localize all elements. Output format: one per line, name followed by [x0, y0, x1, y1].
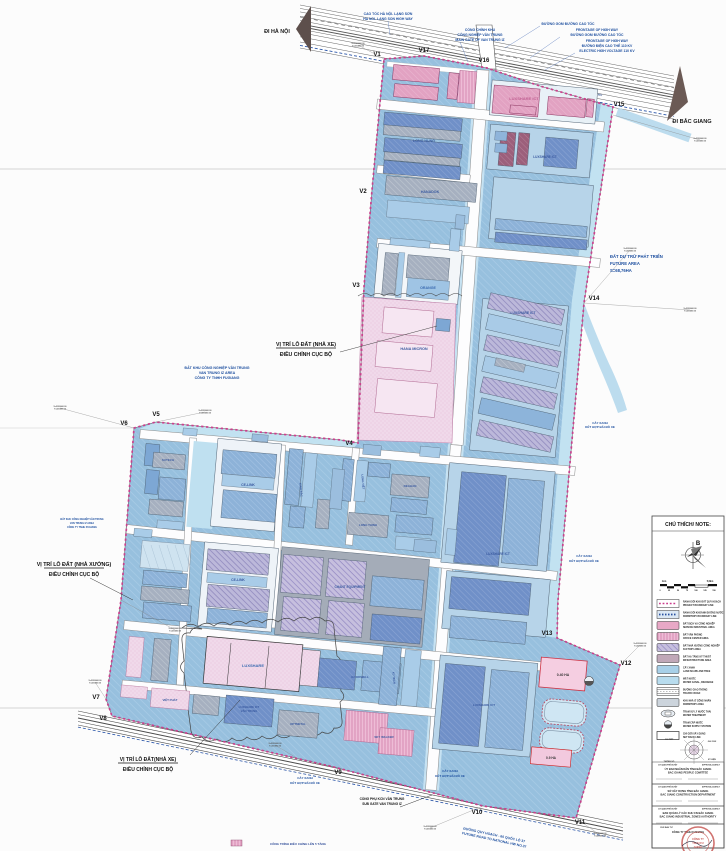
svg-text:HA NOI- LANG SON HIGH WAY: HA NOI- LANG SON HIGH WAY	[363, 17, 413, 21]
svg-text:V4: V4	[345, 441, 353, 447]
svg-text:SET BACK LINE: SET BACK LINE	[683, 736, 701, 739]
svg-text:SKY WALKER: SKY WALKER	[374, 735, 394, 739]
svg-text:CÔNG TRÌNH ĐIỀU CHỈNH LÊN 5 TẦ: CÔNG TRÌNH ĐIỀU CHỈNH LÊN 5 TẦNG	[270, 841, 327, 846]
svg-text:HANADOK: HANADOK	[421, 190, 440, 194]
svg-text:OFFICE CENTER AREA: OFFICE CENTER AREA	[683, 637, 709, 640]
svg-text:LONG HUNG: LONG HUNG	[413, 139, 435, 143]
svg-text:ĐẤT HẠ TẦNG KỸ THUẬT: ĐẤT HẠ TẦNG KỸ THUẬT	[683, 656, 712, 659]
svg-text:CE-LINK: CE-LINK	[241, 483, 255, 487]
svg-text:V8: V8	[99, 716, 107, 722]
svg-text:APPROVAL AGENCY: APPROVAL AGENCY	[702, 786, 721, 789]
svg-text:LUXSHARE ICT: LUXSHARE ICT	[486, 552, 510, 556]
svg-text:CƠ QUAN PHÊ DUYỆT: CƠ QUAN PHÊ DUYỆT	[658, 808, 678, 811]
svg-text:ĐIỀU CHỈNH CỤC BỘ: ĐIỀU CHỈNH CỤC BỘ	[280, 350, 332, 358]
svg-text:WATER CANAL, DRAINAGE: WATER CANAL, DRAINAGE	[683, 681, 714, 684]
svg-text:KẾT HỢP BÃI ĐỖ XE: KẾT HỢP BÃI ĐỖ XE	[585, 424, 615, 429]
svg-text:LUXSHARE ICT: LUXSHARE ICT	[510, 311, 536, 315]
svg-text:V5: V5	[152, 412, 160, 418]
svg-text:APPROVAL AGENCY: APPROVAL AGENCY	[702, 764, 721, 767]
svg-text:KẾT HỢP BÃI ĐỖ XE: KẾT HỢP BÃI ĐỖ XE	[290, 780, 320, 785]
svg-text:VÂN TRUNG: VÂN TRUNG	[241, 708, 258, 713]
svg-text:V17: V17	[419, 48, 430, 54]
svg-text:VAN TRUNG IZ AREA: VAN TRUNG IZ AREA	[70, 522, 94, 525]
svg-text:INFRASTRUCTURE AREA: INFRASTRUCTURE AREA	[683, 659, 712, 662]
svg-text:5,6km: 5,6km	[707, 581, 714, 583]
svg-text:B: B	[696, 541, 701, 547]
svg-text:CÔNG TY TNHH FUGIANG: CÔNG TY TNHH FUGIANG	[195, 375, 240, 380]
svg-text:ĐI BẮC GIANG: ĐI BẮC GIANG	[672, 117, 711, 125]
svg-text:V3: V3	[352, 283, 360, 289]
svg-text:V2: V2	[359, 189, 367, 195]
svg-text:TRAFFIC ROAD: TRAFFIC ROAD	[683, 692, 701, 695]
svg-text:FUTURE AREA: FUTURE AREA	[610, 261, 640, 266]
svg-text:Y=431590.00: Y=431590.00	[684, 310, 697, 313]
svg-text:LUXSHARE ICT: LUXSHARE ICT	[473, 703, 495, 707]
svg-text:CỔNG CHÍNH KHU: CỔNG CHÍNH KHU	[465, 27, 496, 32]
svg-text:LUXSHARE ICT: LUXSHARE ICT	[509, 96, 539, 101]
svg-text:SUB GATE VAN TRUNG IZ: SUB GATE VAN TRUNG IZ	[362, 802, 402, 806]
svg-text:0.40 HA: 0.40 HA	[557, 673, 570, 677]
svg-text:CƠ QUAN PHÊ DUYỆT: CƠ QUAN PHÊ DUYỆT	[658, 786, 678, 789]
svg-text:DORMITORY BOUNDARY LINE: DORMITORY BOUNDARY LINE	[683, 615, 717, 618]
svg-text:ĐIỀU CHỈNH CỤC BỘ: ĐIỀU CHỈNH CỤC BỘ	[123, 765, 173, 773]
svg-text:CÂY XANH: CÂY XANH	[576, 553, 592, 558]
svg-text:FRONTAGE OF HIGH WAY: FRONTAGE OF HIGH WAY	[576, 28, 619, 32]
svg-text:Y=431590.00: Y=431590.00	[54, 408, 67, 411]
svg-text:LUXSHARE ICT: LUXSHARE ICT	[533, 155, 557, 159]
svg-text:CỔNG PHỤ KCN VÂN TRUNG: CỔNG PHỤ KCN VÂN TRUNG	[360, 796, 405, 801]
svg-text:ĐẤT DỰ TRỮ PHÁT TRIỂN: ĐẤT DỰ TRỮ PHÁT TRIỂN	[610, 254, 663, 259]
svg-text:Y=431590.00: Y=431590.00	[352, 45, 365, 48]
svg-text:LUXSHARE: LUXSHARE	[242, 663, 264, 668]
svg-text:ELECTRIC HIGH VOLTAGE 110 KV: ELECTRIC HIGH VOLTAGE 110 KV	[579, 49, 635, 53]
svg-text:V13: V13	[542, 631, 553, 637]
svg-text:Y=431590.00: Y=431590.00	[199, 412, 212, 415]
svg-text:VỊ TRÍ LÔ ĐẤT(NHÀ XE): VỊ TRÍ LÔ ĐẤT(NHÀ XE)	[120, 755, 177, 763]
svg-text:CÔNG TY TNHH FUGIANG: CÔNG TY TNHH FUGIANG	[67, 526, 97, 529]
svg-text:Y=431590.00: Y=431590.00	[624, 250, 637, 253]
svg-text:Y=431590.00: Y=431590.00	[269, 745, 282, 748]
svg-text:V10: V10	[472, 810, 483, 816]
svg-text:DORMITORY AREA: DORMITORY AREA	[683, 703, 704, 706]
svg-text:VỊ TRÍ LÔ ĐẤT (NHÀ XE): VỊ TRÍ LÔ ĐẤT (NHÀ XE)	[276, 340, 336, 348]
svg-text:Y=431590.00: Y=431590.00	[169, 630, 182, 633]
svg-text:BAC GIANG CONSTRUCTION DEPARTM: BAC GIANG CONSTRUCTION DEPARTMENT	[661, 793, 716, 797]
svg-text:CÔNG NGHIỆP VÂN TRUNG: CÔNG NGHIỆP VÂN TRUNG	[457, 32, 503, 37]
svg-text:SERVICE INDUSTRIAL AREA: SERVICE INDUSTRIAL AREA	[683, 626, 715, 629]
svg-text:VAN TRUNG IZ AREA: VAN TRUNG IZ AREA	[199, 371, 236, 375]
svg-text:VỊ TRÍ LÔ ĐẤT (NHÀ XƯỞNG): VỊ TRÍ LÔ ĐẤT (NHÀ XƯỞNG)	[37, 560, 112, 568]
svg-text:CÂY XANH: CÂY XANH	[297, 775, 313, 780]
svg-text:MẶT NƯỚC: MẶT NƯỚC	[683, 678, 696, 681]
svg-text:TRẠM CẤP NƯỚC: TRẠM CẤP NƯỚC	[683, 722, 703, 725]
svg-text:Y=431590.00: Y=431590.00	[634, 645, 647, 648]
svg-text:GHI CHÚ: GHI CHÚ	[708, 740, 717, 743]
svg-text:WATER SUPPLY STATION: WATER SUPPLY STATION	[683, 725, 711, 728]
svg-text:KÝ HIỆU: KÝ HIỆU	[708, 758, 717, 761]
svg-text:V12: V12	[621, 661, 632, 667]
svg-text:ĐƯỜNG GIAO THÔNG: ĐƯỜNG GIAO THÔNG	[683, 689, 708, 692]
svg-text:V15: V15	[614, 102, 625, 108]
svg-text:CÂY XANH: CÂY XANH	[683, 667, 695, 670]
svg-text:ĐIỀU CHỈNH CỤC BỘ: ĐIỀU CHỈNH CỤC BỘ	[49, 570, 99, 578]
svg-text:KHU NHÀ Ở CÔNG NHÂN: KHU NHÀ Ở CÔNG NHÂN	[683, 700, 711, 703]
svg-text:Y=431590.00: Y=431590.00	[594, 835, 607, 838]
svg-text:Y=431590.00: Y=431590.00	[694, 140, 707, 143]
svg-text:LAND SCAPE AND TREE: LAND SCAPE AND TREE	[683, 670, 711, 673]
svg-text:LONG THỊNH: LONG THỊNH	[359, 523, 377, 527]
svg-text:RANH GIỚI KHOẢNH ĐƯỜNG NƯỚC: RANH GIỚI KHOẢNH ĐƯỜNG NƯỚC	[683, 612, 724, 615]
svg-text:CHÚ THÍCH/ NOTE:: CHÚ THÍCH/ NOTE:	[665, 520, 711, 528]
svg-text:Y=431590.00: Y=431590.00	[89, 682, 102, 685]
svg-text:APPROVAL AGENCY: APPROVAL AGENCY	[702, 808, 721, 811]
svg-text:ĐẤT VĂN PHÒNG: ĐẤT VĂN PHÒNG	[683, 634, 702, 637]
svg-text:KẾT HỢP BÃI ĐỖ XE: KẾT HỢP BÃI ĐỖ XE	[435, 773, 465, 778]
svg-text:BAC GIANG PEOPLE COMITTEE: BAC GIANG PEOPLE COMITTEE	[668, 771, 708, 775]
svg-text:CHỈ GIỚI XÂY DỰNG: CHỈ GIỚI XÂY DỰNG	[683, 733, 706, 736]
svg-text:CHỦ ĐẦU TƯ: CHỦ ĐẦU TƯ	[660, 826, 673, 829]
svg-text:V7: V7	[92, 695, 100, 701]
svg-text:CHANT EQUIPMENT: CHANT EQUIPMENT	[335, 585, 366, 589]
svg-text:OPTMETAL: OPTMETAL	[290, 722, 306, 726]
svg-text:ĐẤT KHU CÔNG NGHIỆP VÂN TRUNG: ĐẤT KHU CÔNG NGHIỆP VÂN TRUNG	[184, 365, 249, 370]
svg-text:0.9 HA: 0.9 HA	[546, 756, 557, 760]
svg-text:CAO TỐC HÀ NỘI- LẠNG SƠN: CAO TỐC HÀ NỘI- LẠNG SƠN	[364, 11, 413, 16]
svg-text:HANA MICRON: HANA MICRON	[400, 347, 428, 351]
svg-text:ĐẤT KHU CÔNG NGHIỆP VÂN TRUNG: ĐẤT KHU CÔNG NGHIỆP VÂN TRUNG	[60, 518, 103, 521]
svg-text:RANH GIỚI KHU ĐẤT QUY HOẠCH: RANH GIỚI KHU ĐẤT QUY HOẠCH	[683, 601, 721, 604]
svg-text:VIỆT PHÁT: VIỆT PHÁT	[162, 697, 177, 702]
svg-text:WATER TREATMENT: WATER TREATMENT	[683, 714, 706, 717]
svg-text:BAC GIANG INDUSTRIAL ZONES AUT: BAC GIANG INDUSTRIAL ZONES AUTHORITY	[660, 815, 717, 819]
svg-text:SUTECH: SUTECH	[162, 458, 174, 462]
svg-text:MAIN GATE OF VAN TRUNG IZ: MAIN GATE OF VAN TRUNG IZ	[455, 38, 504, 42]
svg-text:V16: V16	[479, 58, 490, 64]
svg-text:ĐI HÀ NỘI: ĐI HÀ NỘI	[264, 27, 290, 35]
svg-text:PROJECT BOUNDARY LINE: PROJECT BOUNDARY LINE	[683, 604, 714, 607]
svg-text:ĐƯỜNG GOM ĐƯỜNG CAO TỐC: ĐƯỜNG GOM ĐƯỜNG CAO TỐC	[541, 21, 595, 26]
svg-text:ORANGE: ORANGE	[420, 286, 436, 290]
svg-text:CƠ QUAN PHÊ DUYỆT: CƠ QUAN PHÊ DUYỆT	[658, 764, 678, 767]
svg-text:V14: V14	[589, 296, 600, 302]
svg-text:Y=431590.00: Y=431590.00	[424, 828, 437, 831]
svg-text:CHI TIẾT: CHI TIẾT	[665, 738, 674, 741]
svg-text:ĐƯỜNG ĐIỆN CAO THẾ 110 KV: ĐƯỜNG ĐIỆN CAO THẾ 110 KV	[582, 43, 633, 48]
svg-text:KẾT HỢP BÃI ĐỖ XE: KẾT HỢP BÃI ĐỖ XE	[569, 558, 599, 563]
svg-text:THÔNG SỐ: THÔNG SỐ	[664, 760, 675, 763]
svg-text:ĐẤT DỊCH VỤ CÔNG NGHIỆP: ĐẤT DỊCH VỤ CÔNG NGHIỆP	[683, 623, 715, 626]
svg-text:S=68,76HA: S=68,76HA	[610, 268, 632, 273]
svg-text:DEAHAN: DEAHAN	[404, 484, 417, 488]
svg-text:TRẠM XỬ LÝ NƯỚC THẢI: TRẠM XỬ LÝ NƯỚC THẢI	[683, 711, 711, 714]
svg-text:FRONTAGE OF HIGH WAY: FRONTAGE OF HIGH WAY	[586, 39, 629, 43]
svg-text:ĐẤT NHÀ XƯỞNG CÔNG NGHIỆP: ĐẤT NHÀ XƯỞNG CÔNG NGHIỆP	[683, 645, 720, 648]
svg-text:FACTORY AREA: FACTORY AREA	[683, 648, 701, 651]
svg-text:ĐƯỜNG GOM ĐƯỜNG CAO TỐC: ĐƯỜNG GOM ĐƯỜNG CAO TỐC	[570, 32, 624, 37]
svg-text:1cm: 1cm	[662, 581, 667, 583]
svg-text:CÂY XANH: CÂY XANH	[442, 768, 458, 773]
svg-text:V9: V9	[334, 770, 342, 776]
svg-text:GOODWELL: GOODWELL	[351, 675, 369, 679]
svg-text:CE-LINK: CE-LINK	[231, 578, 245, 582]
